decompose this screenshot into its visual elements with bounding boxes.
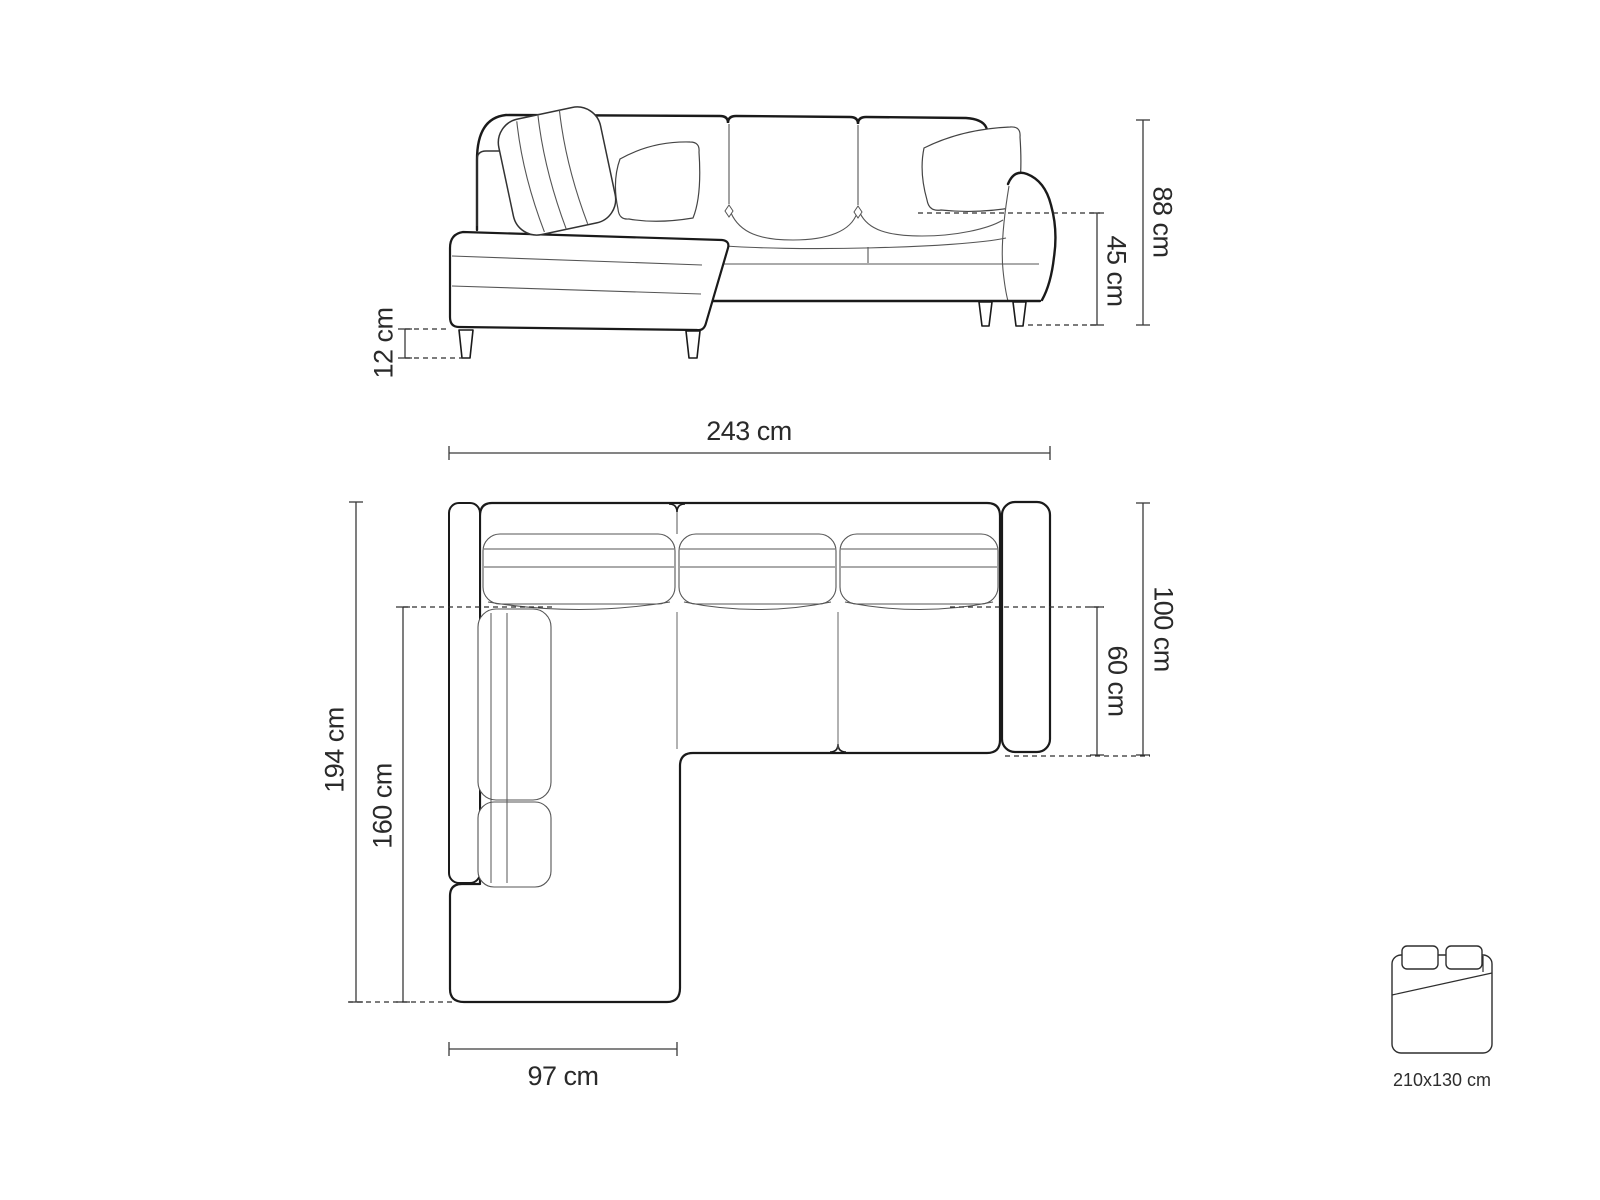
dim-label-chaise-length: 160 cm xyxy=(367,763,397,849)
dim-total-width xyxy=(449,446,1050,460)
dim-label-body-depth: 100 cm xyxy=(1149,586,1179,672)
elevation-view: 88 cm 45 cm 12 cm xyxy=(368,102,1177,378)
dim-label-total-height: 88 cm xyxy=(1148,186,1178,257)
seat-cushion-curve xyxy=(731,213,857,240)
dim-label-seat-depth: 60 cm xyxy=(1103,645,1133,716)
dim-chaise-width xyxy=(449,1042,677,1056)
bed-pillow xyxy=(1402,946,1438,969)
bed-pillow xyxy=(1446,946,1482,969)
dim-label-seat-height: 45 cm xyxy=(1102,235,1132,306)
sofa-leg xyxy=(686,331,700,358)
chaise-body xyxy=(450,232,728,330)
sofa-technical-drawing: 88 cm 45 cm 12 cm xyxy=(0,0,1600,1200)
dim-seat-depth xyxy=(1090,607,1104,755)
dim-label-total-width: 243 cm xyxy=(706,416,792,446)
dim-body-depth xyxy=(1136,503,1150,755)
seat-cushion-curve xyxy=(860,213,1003,236)
plan-armrest xyxy=(1002,502,1050,752)
sofa-leg xyxy=(459,330,473,358)
sofa-leg xyxy=(979,302,992,326)
drawing-svg: 88 cm 45 cm 12 cm xyxy=(0,0,1600,1200)
plan-view: 243 cm 194 cm 160 cm 100 cm 60 cm 97 cm xyxy=(319,416,1178,1091)
bed-icon: 210x130 cm xyxy=(1392,946,1492,1090)
left-throw-pillow xyxy=(615,142,699,221)
sofa-leg xyxy=(1013,302,1026,326)
dim-label-leg-height: 12 cm xyxy=(368,307,398,378)
dim-leg-height xyxy=(398,329,412,358)
sleeping-area-label: 210x130 cm xyxy=(1393,1070,1491,1090)
plan-left-strip xyxy=(449,503,480,883)
plan-chaise-cushions xyxy=(478,609,551,887)
dim-total-depth xyxy=(349,502,363,1002)
dim-label-total-depth: 194 cm xyxy=(319,707,349,793)
seat-front-edge xyxy=(712,238,1006,249)
dim-chaise-length xyxy=(396,607,410,1002)
dim-label-chaise-width: 97 cm xyxy=(527,1061,598,1091)
striped-back-cushion xyxy=(494,102,620,239)
plan-back-cushions xyxy=(483,534,998,604)
